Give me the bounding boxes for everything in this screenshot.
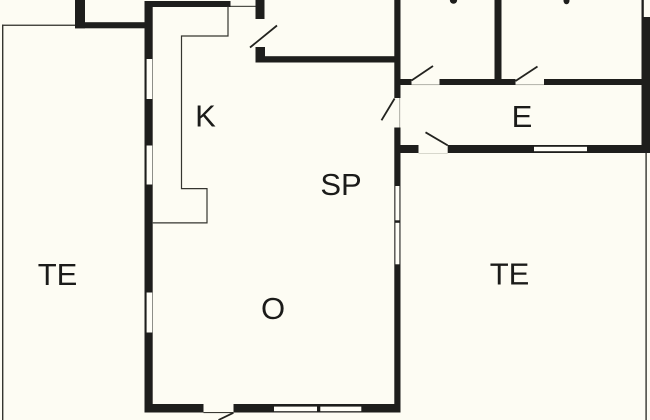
svg-text:TE: TE	[490, 256, 530, 291]
svg-text:E: E	[512, 99, 533, 134]
svg-text:SP: SP	[320, 167, 361, 202]
svg-text:O: O	[261, 291, 285, 326]
svg-text:K: K	[195, 99, 216, 134]
svg-text:TE: TE	[38, 257, 78, 292]
